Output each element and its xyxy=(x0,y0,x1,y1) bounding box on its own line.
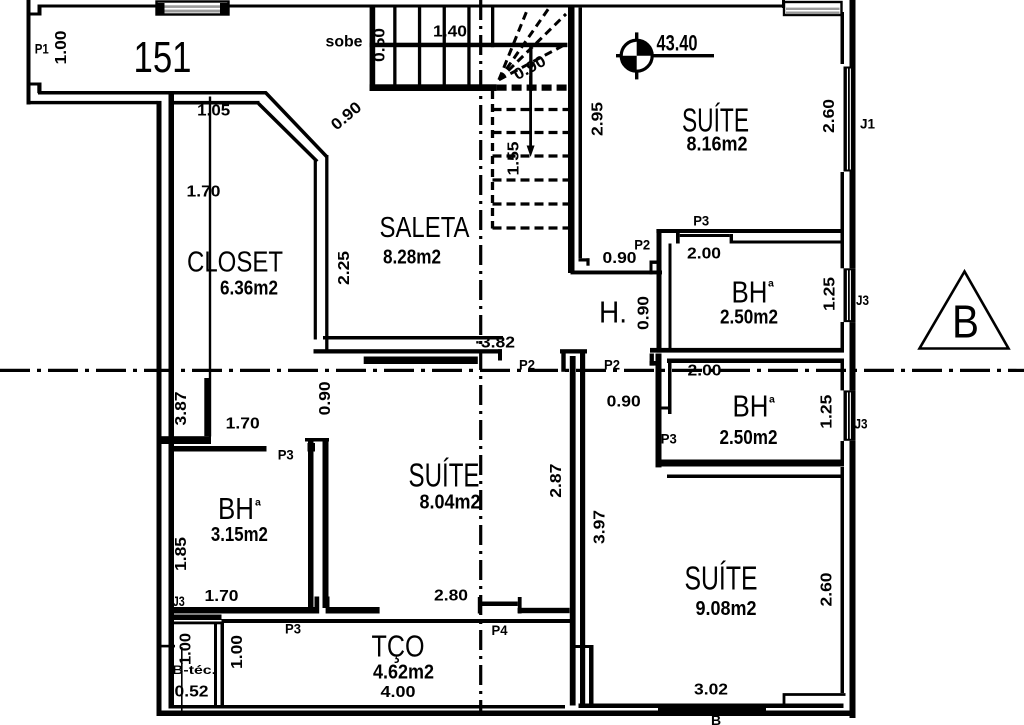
svg-text:CLOSET: CLOSET xyxy=(187,247,283,279)
svg-text:3.02: 3.02 xyxy=(694,682,728,699)
svg-text:1.70: 1.70 xyxy=(205,588,239,605)
svg-text:1.00: 1.00 xyxy=(178,633,195,665)
svg-text:J3: J3 xyxy=(855,416,868,432)
svg-text:1.70: 1.70 xyxy=(226,416,260,433)
svg-text:0.90: 0.90 xyxy=(607,394,641,411)
svg-text:ª: ª xyxy=(255,498,261,515)
svg-text:1.85: 1.85 xyxy=(173,537,190,571)
svg-text:1.00: 1.00 xyxy=(53,30,70,64)
svg-text:B: B xyxy=(711,712,721,725)
svg-text:P3: P3 xyxy=(661,431,677,447)
svg-text:BH: BH xyxy=(732,275,768,310)
svg-text:3.97: 3.97 xyxy=(592,510,609,544)
svg-text:4.62m2: 4.62m2 xyxy=(373,662,434,684)
svg-text:H.: H. xyxy=(599,295,627,330)
svg-text:2.50m2: 2.50m2 xyxy=(720,427,778,449)
svg-text:SUÍTE: SUÍTE xyxy=(409,457,480,494)
svg-text:2.25: 2.25 xyxy=(336,251,353,285)
svg-text:P1: P1 xyxy=(35,41,49,57)
svg-text:P4: P4 xyxy=(492,622,508,638)
svg-text:151: 151 xyxy=(134,33,192,82)
svg-text:B-téc.: B-téc. xyxy=(172,665,216,677)
svg-text:0.52: 0.52 xyxy=(175,684,209,701)
svg-text:1.25: 1.25 xyxy=(821,277,838,311)
svg-text:B: B xyxy=(952,296,979,348)
svg-text:ª: ª xyxy=(768,279,774,296)
svg-text:P3: P3 xyxy=(278,447,294,463)
svg-text:3.87: 3.87 xyxy=(173,391,190,425)
svg-text:P2: P2 xyxy=(634,237,650,253)
svg-text:2.50m2: 2.50m2 xyxy=(720,307,778,329)
svg-text:4.00: 4.00 xyxy=(381,684,416,701)
svg-text:2.00: 2.00 xyxy=(687,246,721,263)
svg-text:6.36m2: 6.36m2 xyxy=(220,278,278,300)
svg-text:1.00: 1.00 xyxy=(229,635,246,669)
svg-text:J3: J3 xyxy=(856,292,869,308)
svg-text:2.60: 2.60 xyxy=(819,572,836,606)
svg-text:1.25: 1.25 xyxy=(819,395,836,429)
svg-text:sobe: sobe xyxy=(326,34,363,51)
svg-text:8.28m2: 8.28m2 xyxy=(383,247,441,269)
svg-text:8.04m2: 8.04m2 xyxy=(420,492,481,514)
svg-text:2.00: 2.00 xyxy=(688,363,722,380)
svg-text:2.80: 2.80 xyxy=(434,588,468,605)
svg-text:0.90: 0.90 xyxy=(603,250,637,267)
svg-text:3.15m2: 3.15m2 xyxy=(211,524,268,546)
svg-text:P3: P3 xyxy=(285,621,301,637)
svg-text:ª: ª xyxy=(769,395,775,412)
svg-text:P2: P2 xyxy=(604,357,620,373)
svg-text:P2: P2 xyxy=(519,357,535,373)
svg-text:BH: BH xyxy=(733,389,769,424)
svg-text:J1: J1 xyxy=(860,116,875,132)
svg-text:TÇO: TÇO xyxy=(372,629,425,664)
svg-text:2.60: 2.60 xyxy=(821,99,838,133)
svg-text:0.90: 0.90 xyxy=(635,296,652,330)
svg-text:P3: P3 xyxy=(693,213,709,229)
svg-text:2.95: 2.95 xyxy=(590,102,607,136)
svg-text:0.50: 0.50 xyxy=(372,28,389,62)
svg-text:9.08m2: 9.08m2 xyxy=(696,598,757,620)
svg-text:J3: J3 xyxy=(173,593,185,609)
svg-text:1.70: 1.70 xyxy=(187,184,221,201)
svg-text:BH: BH xyxy=(218,491,254,526)
svg-text:43.40: 43.40 xyxy=(657,31,698,56)
svg-text:0.90: 0.90 xyxy=(317,381,334,415)
svg-text:1.40: 1.40 xyxy=(433,24,467,41)
svg-text:1.05: 1.05 xyxy=(197,103,230,120)
svg-text:2.87: 2.87 xyxy=(548,464,565,498)
svg-text:SALETA: SALETA xyxy=(380,212,471,244)
svg-text:SUÍTE: SUÍTE xyxy=(685,560,758,597)
svg-text:8.16m2: 8.16m2 xyxy=(687,134,748,156)
svg-text:·3.82: ·3.82 xyxy=(475,335,515,352)
svg-text:1.55: 1.55 xyxy=(506,141,523,175)
